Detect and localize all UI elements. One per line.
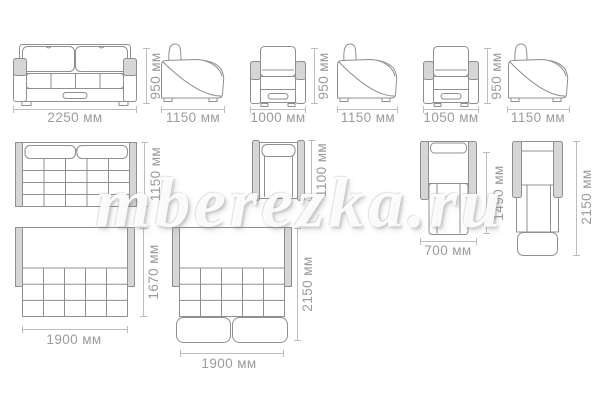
dim-armchair-top-depth: 1100 мм xyxy=(314,124,330,216)
armchair2-side-view xyxy=(506,43,570,104)
furniture-dimensions-diagram: 2250 мм 950 мм 1150 мм 100 xyxy=(0,0,600,400)
dim-line-armchair-bed-width xyxy=(420,241,477,242)
dim-sofa-top-depth: 1150 мм xyxy=(148,128,164,220)
armchair-top-view xyxy=(252,140,305,201)
sofa-front-view xyxy=(13,44,137,106)
armchair1-side-drawing xyxy=(336,43,398,104)
armchair1-front-drawing xyxy=(250,46,306,106)
sofa-top-view xyxy=(15,142,137,207)
dim-armchair-bed-length: 1490 мм xyxy=(491,147,507,239)
armchair-bed-full-drawing xyxy=(508,141,567,257)
dim-armchair-bed-full-length: 2150 мм xyxy=(579,151,595,243)
dim-line-armchair-bed-length xyxy=(486,152,487,234)
dim-sofa-bed-depth: 1670 мм xyxy=(146,226,162,318)
dim-sofa-front-width: 2250 мм xyxy=(29,110,121,126)
armchair-bed-top-drawing xyxy=(420,141,477,235)
dim-line-sofa-bed-width xyxy=(22,329,128,330)
sofa-bed-full-view xyxy=(172,227,292,343)
dim-armchair1-width: 1000 мм xyxy=(232,110,324,126)
dim-sofa-bed-full-width: 1900 мм xyxy=(183,356,275,372)
dim-line-sofa-bed-depth xyxy=(143,228,144,317)
dim-sofa-side-depth: 1150 мм xyxy=(147,110,239,126)
dim-armchair-bed-width: 700 мм xyxy=(402,243,494,259)
dim-armchair1-height: 950 мм xyxy=(316,30,332,122)
dim-armchair2-width: 1050 мм xyxy=(405,110,497,126)
dim-line-armchair-top-depth xyxy=(311,140,312,201)
sofa-top-drawing xyxy=(15,142,137,207)
armchair2-side-drawing xyxy=(506,43,570,104)
sofa-front-drawing xyxy=(13,44,137,106)
armchair-top-drawing xyxy=(252,140,305,201)
armchair1-front-view xyxy=(250,46,306,106)
armchair2-front-view xyxy=(423,46,479,106)
armchair-bed-top-view xyxy=(420,141,477,235)
dim-line-sofa-front-height xyxy=(146,48,147,104)
armchair2-front-drawing xyxy=(423,46,479,106)
armchair1-side-view xyxy=(336,43,398,104)
dim-armchair1-side-depth: 1150 мм xyxy=(322,110,414,126)
dim-sofa-bed-full-length: 2150 мм xyxy=(300,238,316,330)
dim-armchair2-side-depth: 1150 мм xyxy=(492,110,584,126)
dim-line-armchair1-height xyxy=(314,48,315,104)
dim-line-armchair2-height xyxy=(487,48,488,104)
dim-armchair2-height: 950 мм xyxy=(489,30,505,122)
sofa-bed-top-drawing xyxy=(15,227,135,317)
dim-line-sofa-bed-full-length xyxy=(297,228,298,341)
dim-line-sofa-bed-full-width xyxy=(180,353,284,354)
dim-line-sofa-top-depth xyxy=(144,142,145,207)
armchair-bed-full-view xyxy=(508,141,567,257)
dim-sofa-bed-width: 1900 мм xyxy=(28,332,120,348)
sofa-side-view xyxy=(160,43,225,104)
dim-line-armchair-bed-full-length xyxy=(576,141,577,256)
sofa-side-drawing xyxy=(160,43,225,104)
sofa-bed-full-drawing xyxy=(172,227,292,343)
sofa-bed-top-view xyxy=(15,227,135,317)
